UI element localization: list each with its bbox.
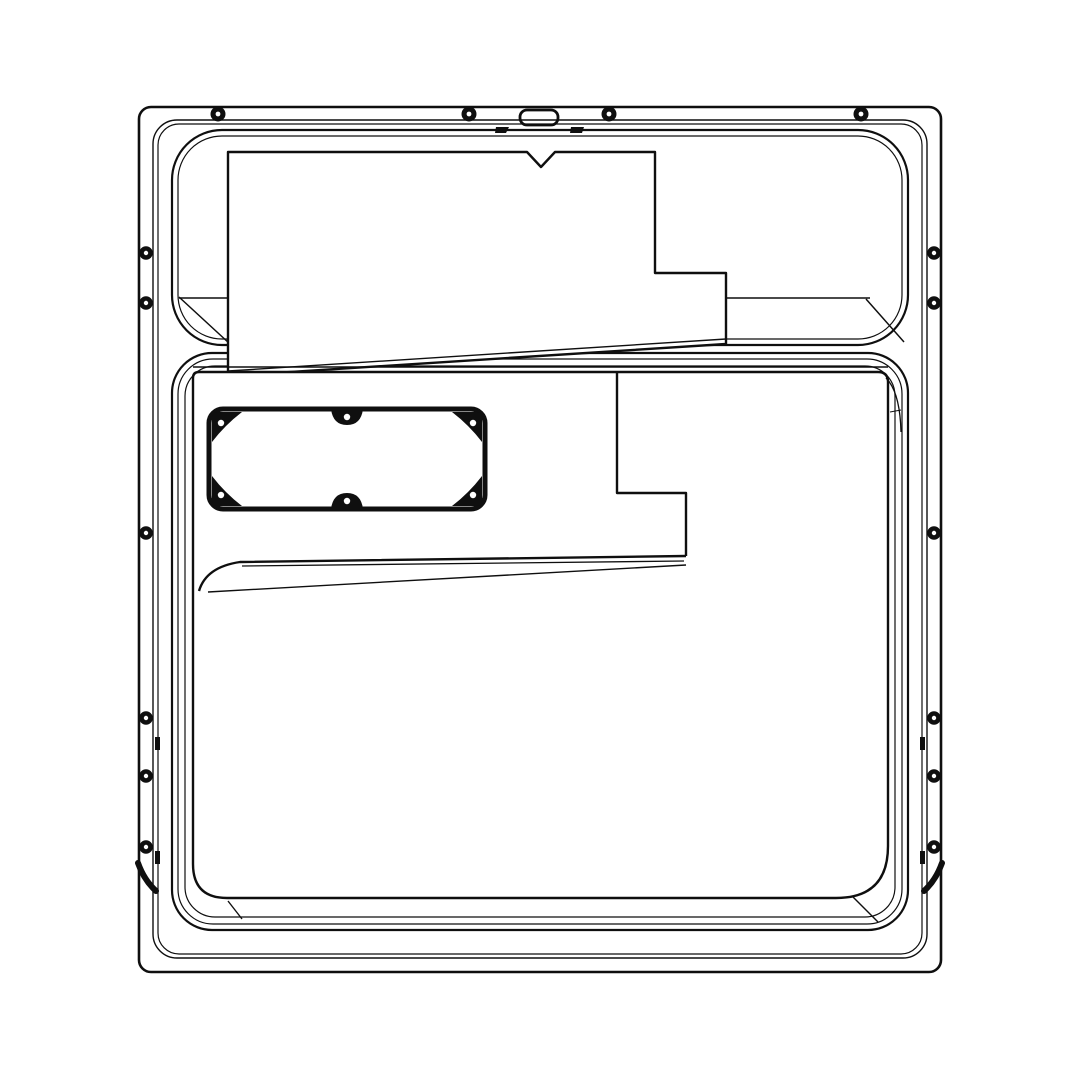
- side-clip-left-upper: [155, 737, 160, 750]
- screw-right-3: [927, 526, 941, 540]
- screw-right-5-hole: [932, 774, 936, 778]
- latch-tick-right: [570, 127, 584, 133]
- screw-top-4: [854, 107, 869, 122]
- screw-left-6: [139, 840, 153, 854]
- screw-left-1: [139, 246, 153, 260]
- upper-insulation-panel: [228, 152, 726, 376]
- latch-tick-left: [495, 127, 509, 133]
- screw-right-6-hole: [932, 845, 936, 849]
- screw-right-2-hole: [932, 301, 936, 305]
- screw-top-3: [602, 107, 617, 122]
- side-clip-right-upper: [920, 737, 925, 750]
- screw-right-2: [927, 296, 941, 310]
- gasket-screw-hole-tl: [218, 420, 224, 426]
- gasket-screw-hole-top-mid: [344, 414, 350, 420]
- gasket-screw-hole-tr: [470, 420, 476, 426]
- screw-left-4-hole: [144, 716, 148, 720]
- drawing-canvas: [0, 0, 1080, 1080]
- screw-right-4: [927, 711, 941, 725]
- screw-left-6-hole: [144, 845, 148, 849]
- screw-right-1: [927, 246, 941, 260]
- screw-top-1-hole: [216, 112, 221, 117]
- screw-right-1-hole: [932, 251, 936, 255]
- pocket-corner-diag-br: [852, 896, 878, 922]
- screw-right-5: [927, 769, 941, 783]
- side-clip-right-lower: [920, 851, 925, 864]
- screw-left-3: [139, 526, 153, 540]
- gasket-screw-hole-br: [470, 492, 476, 498]
- screw-right-4-hole: [932, 716, 936, 720]
- screw-left-2-hole: [144, 301, 148, 305]
- screw-left-1-hole: [144, 251, 148, 255]
- pocket-corner-diag-bl: [228, 901, 242, 919]
- latch-slot: [520, 110, 558, 125]
- screw-top-2: [462, 107, 477, 122]
- screw-top-3-hole: [607, 112, 612, 117]
- screw-right-3-hole: [932, 531, 936, 535]
- screw-top-2-hole: [467, 112, 472, 117]
- screw-left-5: [139, 769, 153, 783]
- screw-left-4: [139, 711, 153, 725]
- screw-right-6: [927, 840, 941, 854]
- upper-pocket-wall-right: [866, 299, 904, 342]
- gasket-screw-hole-bl: [218, 492, 224, 498]
- screw-left-2: [139, 296, 153, 310]
- side-clip-left-lower: [155, 851, 160, 864]
- lower-liner-panel: [193, 372, 888, 898]
- screw-top-4-hole: [859, 112, 864, 117]
- gasket-screw-hole-bottom-mid: [344, 498, 350, 504]
- screw-left-5-hole: [144, 774, 148, 778]
- technical-drawing-svg: [0, 0, 1080, 1080]
- screw-left-3-hole: [144, 531, 148, 535]
- screw-top-1: [211, 107, 226, 122]
